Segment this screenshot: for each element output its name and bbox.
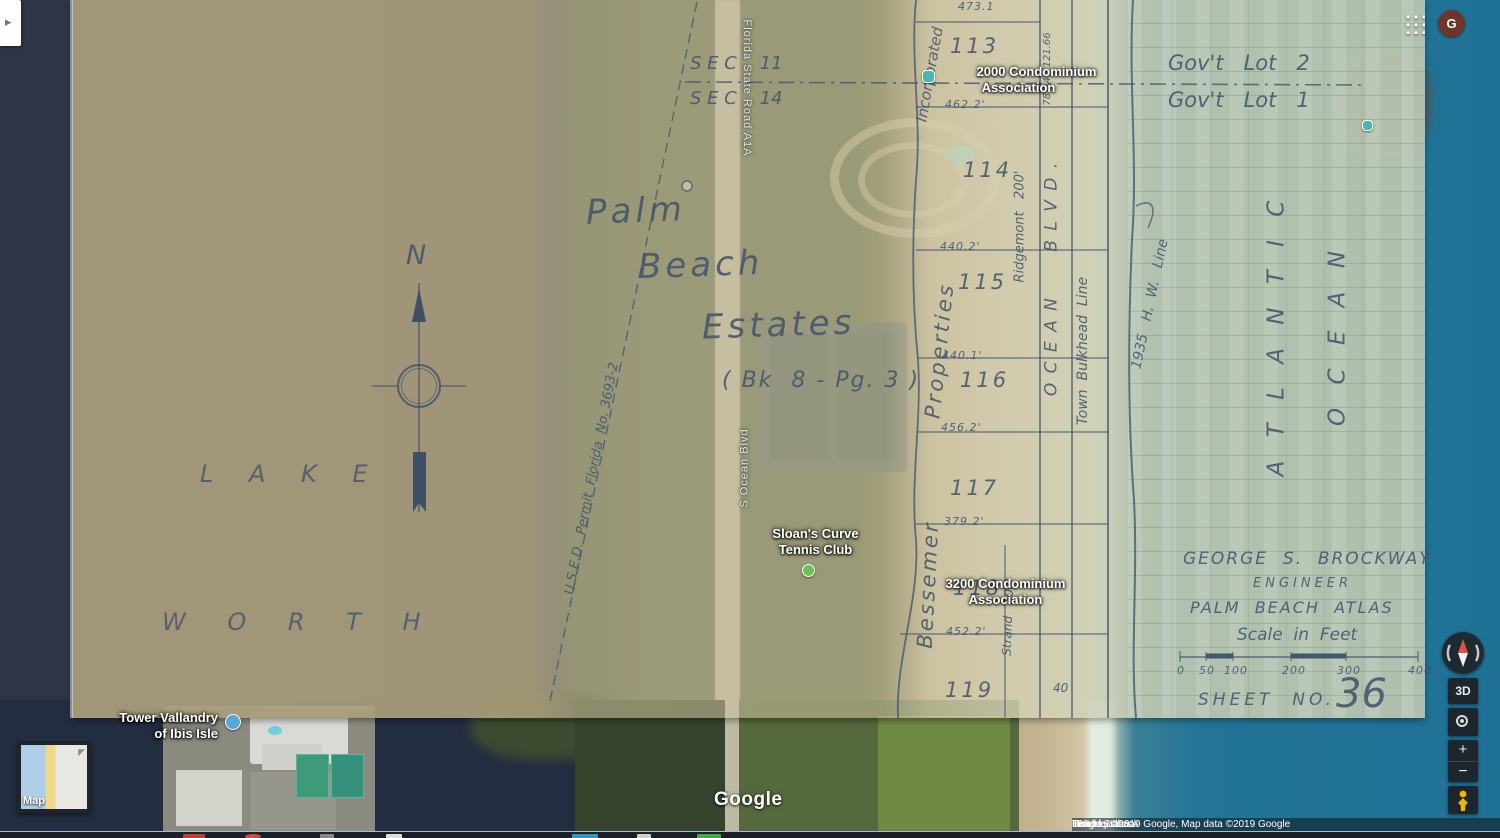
scale-tick-200: 200: [1282, 665, 1306, 676]
poi-tennis-line1: Sloan's Curve: [758, 526, 873, 542]
my-location-button[interactable]: [1448, 708, 1478, 736]
engineer-title: ENGINEER: [1253, 577, 1352, 590]
compass-control[interactable]: [1442, 632, 1484, 674]
road-width-40: 40: [1053, 682, 1068, 694]
zoom-out-button[interactable]: −: [1448, 761, 1478, 782]
minimap-toggle[interactable]: ◤ Map: [17, 741, 91, 813]
govt-lot-2-label: Gov't Lot 2: [1168, 53, 1310, 74]
tennis-court: [296, 754, 329, 798]
pool: [268, 726, 282, 735]
road-label-s-ocean-blvd: S Ocean Blvd: [739, 421, 751, 516]
google-maps-screen: S E C 11 S E C 14 Gov't Lot 2 Gov't Lot …: [0, 0, 1500, 838]
lot-113: 113: [950, 36, 999, 57]
minimap-expand-icon: ◤: [78, 747, 85, 758]
tower-poi-icon: [225, 714, 241, 730]
atlas-title: PALM BEACH ATLAS: [1190, 600, 1394, 616]
taskbar-icon[interactable]: [697, 834, 721, 838]
google-apps-grid-icon[interactable]: [1403, 12, 1425, 34]
ridgemont-label: Ridgemont 200': [1014, 147, 1027, 307]
tilt-3d-button[interactable]: 3D: [1448, 678, 1478, 704]
taskbar-icon[interactable]: [245, 834, 261, 838]
zoom-in-button[interactable]: +: [1448, 740, 1478, 761]
pegman-icon: [1448, 786, 1478, 814]
lot-114-dim: 440.2': [940, 241, 981, 252]
lot-117-dim: 379.2': [944, 516, 985, 527]
compass-n-label: N: [406, 242, 426, 269]
lot-115-dim: 440.1': [942, 350, 983, 361]
account-avatar[interactable]: G: [1438, 10, 1465, 37]
atlas-overlay-edge: [70, 0, 73, 718]
poi-3200-condo[interactable]: 3200 Condominium Association: [938, 576, 1073, 608]
poi-tower-line2: of Ibis Isle: [118, 726, 218, 742]
plat-title-beach: Beach: [637, 246, 763, 284]
plat-book-page: ( Bk 8 - Pg. 3 ): [722, 370, 920, 392]
chevron-right-icon: ▸: [5, 14, 12, 30]
poi-3200-condo-line2: Association: [938, 592, 1073, 608]
lot-116-dim: 456.2': [941, 422, 982, 433]
lot-116: 116: [960, 370, 1009, 391]
bulkhead-label: Town Bulkhead Line: [1076, 231, 1090, 471]
plat-title-estates: Estates: [701, 305, 855, 344]
sheet-label: SHEET NO.: [1198, 692, 1335, 709]
taskbar-icon[interactable]: [637, 834, 651, 838]
tennis-poi-icon: [802, 564, 815, 577]
engineer-name: GEORGE S. BROCKWAY: [1183, 551, 1432, 568]
green-field: [878, 716, 1010, 838]
poi-tower-line1: Tower Vallandry: [118, 710, 218, 726]
poi-3200-condo-line1: 3200 Condominium: [938, 576, 1073, 592]
poi-2000-condo-line1: 2000 Condominium: [958, 64, 1115, 80]
poi-tennis-line2: Tennis Club: [758, 542, 873, 558]
lot-113-dim: 462.2': [945, 99, 986, 110]
taskbar-icon[interactable]: [386, 834, 402, 838]
ocean-label: O C E A N: [1327, 225, 1350, 445]
ocean-poi-icon[interactable]: [1362, 120, 1373, 131]
road-label-a1a: Florida State Road A1A: [741, 13, 753, 163]
scale-tick-100: 100: [1224, 665, 1248, 676]
poi-tennis-club[interactable]: Sloan's Curve Tennis Club: [758, 526, 873, 558]
zoom-control: + −: [1448, 740, 1478, 782]
scale-caption: Scale in Feet: [1237, 627, 1357, 644]
sec-14-label: S E C 14: [690, 90, 783, 108]
side-panel-toggle[interactable]: ▸: [0, 0, 21, 46]
scale-tick-50: 50: [1199, 665, 1215, 676]
minimap-label: Map: [23, 795, 45, 807]
my-location-dot: [1460, 719, 1464, 723]
atlantic-label: A T L A N T I C: [1266, 190, 1289, 480]
poi-2000-condo[interactable]: 2000 Condominium Association: [922, 64, 1097, 96]
sec-11-label: S E C 11: [690, 55, 783, 73]
condo-poi-icon: [922, 70, 935, 83]
scale-tick-400: 400: [1408, 665, 1432, 676]
attribution-bar: Imagery ©2019 Google, Map data ©2019 Goo…: [1072, 818, 1500, 831]
pegman-button[interactable]: [1448, 786, 1478, 814]
top-dim: 473.1: [958, 1, 995, 12]
taskbar-icon[interactable]: [183, 834, 205, 838]
lot-117: 117: [950, 478, 999, 499]
lot-118-dim: 452.2': [946, 626, 987, 637]
sheet-number: 36: [1336, 674, 1387, 714]
govt-lot-1-label: Gov't Lot 1: [1168, 90, 1310, 111]
ocean-blvd-label: O C E A N B L V D .: [1044, 99, 1061, 459]
google-watermark: Google: [714, 789, 782, 811]
poi-2000-condo-line2: Association: [940, 80, 1097, 96]
plat-title-palm: Palm: [585, 192, 686, 229]
poi-tower-vallandry[interactable]: Tower Vallandry of Ibis Isle: [118, 710, 218, 742]
taskbar-icon[interactable]: [320, 834, 334, 838]
vegetation: [575, 700, 725, 838]
taskbar-sliver: [0, 831, 1500, 838]
taskbar-icon[interactable]: [572, 834, 598, 838]
map-scale-bar: [1078, 822, 1134, 827]
scale-tick-0: 0: [1177, 665, 1185, 676]
building-roof: [176, 770, 242, 826]
lot-114: 114: [963, 160, 1012, 181]
lot-115: 115: [958, 272, 1007, 293]
tennis-court: [331, 754, 364, 798]
lot-119: 119: [945, 680, 994, 701]
lake-label: L A K E: [200, 462, 382, 486]
worth-label: W O R T H: [162, 610, 438, 634]
